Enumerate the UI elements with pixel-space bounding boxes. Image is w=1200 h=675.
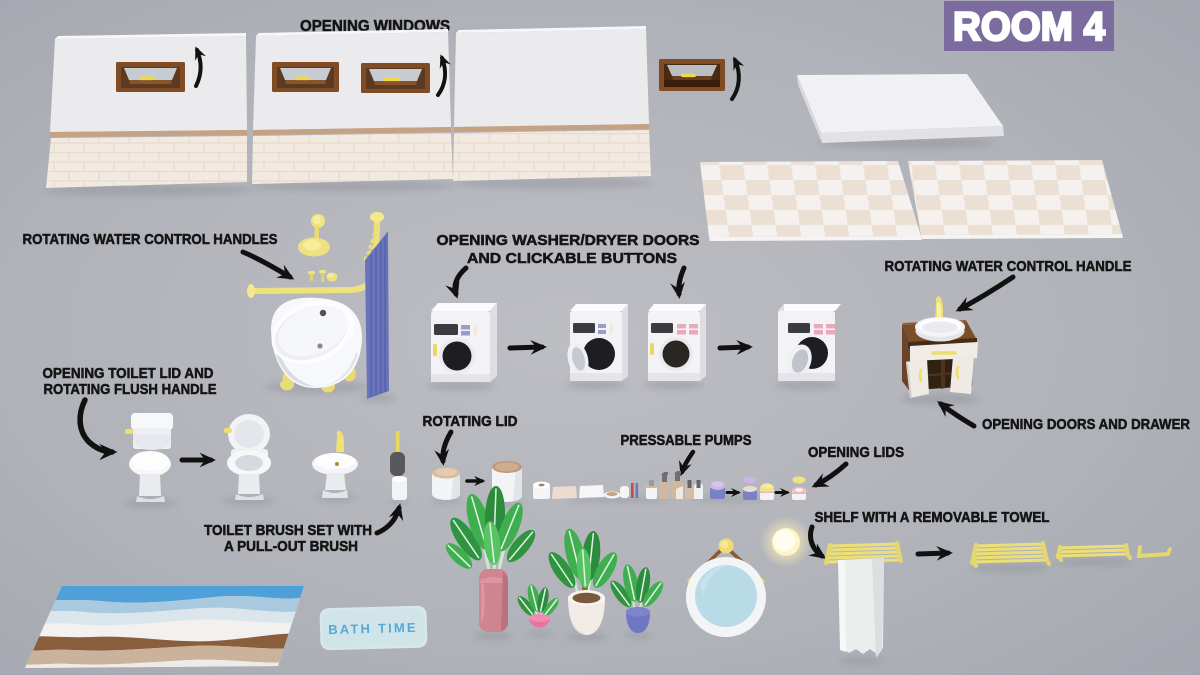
svg-text:OPENING WASHER/DRYER DOORS: OPENING WASHER/DRYER DOORS [437,232,700,249]
svg-text:TOILET BRUSH SET WITH: TOILET BRUSH SET WITH [204,522,372,539]
svg-text:OPENING TOILET LID AND: OPENING TOILET LID AND [43,365,214,382]
svg-text:PRESSABLE PUMPS: PRESSABLE PUMPS [621,432,752,449]
svg-text:BATH TIME: BATH TIME [328,620,418,637]
svg-text:ROTATING WATER CONTROL HANDLE: ROTATING WATER CONTROL HANDLE [885,258,1132,275]
svg-text:A PULL-OUT BRUSH: A PULL-OUT BRUSH [224,538,358,555]
svg-text:ROOM 4: ROOM 4 [953,5,1106,49]
svg-text:ROTATING LID: ROTATING LID [423,413,518,430]
svg-text:AND CLICKABLE BUTTONS: AND CLICKABLE BUTTONS [467,250,677,267]
svg-text:ROTATING FLUSH HANDLE: ROTATING FLUSH HANDLE [44,381,217,398]
svg-text:OPENING DOORS AND DRAWER: OPENING DOORS AND DRAWER [982,416,1190,433]
svg-text:OPENING LIDS: OPENING LIDS [808,444,904,461]
svg-text:SHELF WITH A REMOVABLE TOWEL: SHELF WITH A REMOVABLE TOWEL [815,509,1050,526]
svg-text:ROTATING WATER CONTROL HANDLES: ROTATING WATER CONTROL HANDLES [23,231,278,248]
